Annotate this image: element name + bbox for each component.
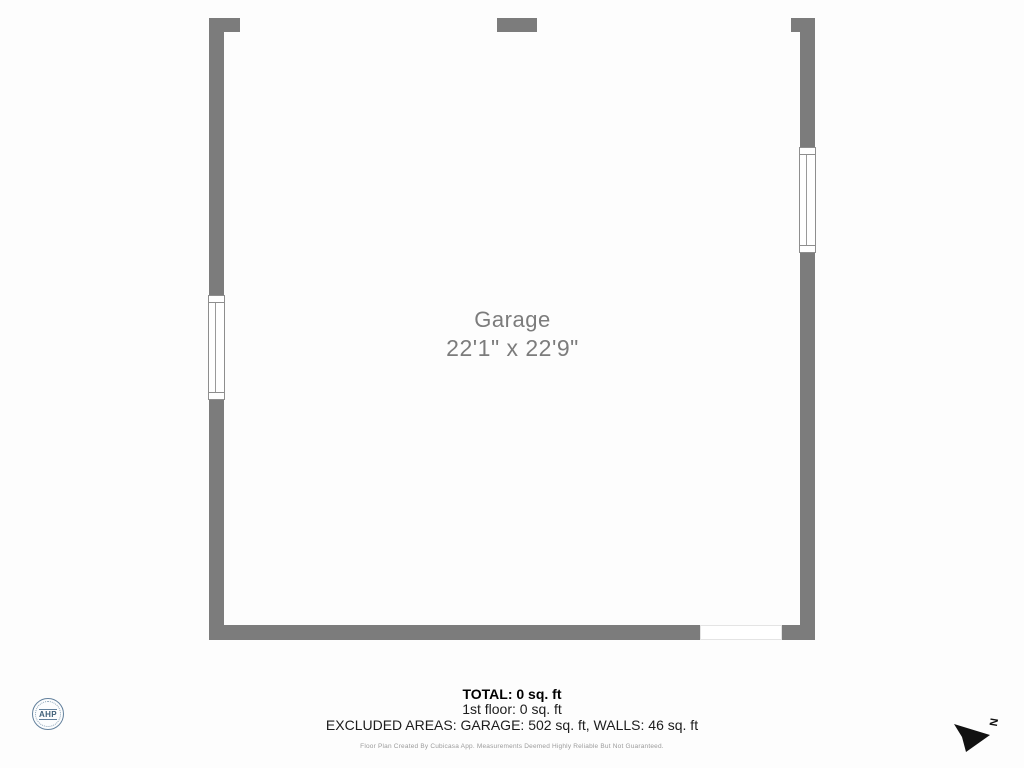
area-summary: TOTAL: 0 sq. ft 1st floor: 0 sq. ft EXCL… bbox=[0, 687, 1024, 756]
window-frame-line bbox=[800, 154, 815, 155]
wall-right-upper bbox=[800, 18, 815, 147]
wall-left-upper bbox=[209, 18, 224, 295]
north-arrow-icon bbox=[952, 722, 992, 756]
window-right bbox=[799, 147, 816, 253]
window-frame-line bbox=[209, 302, 224, 303]
room-dimensions: 22'1" x 22'9" bbox=[224, 334, 801, 362]
wall-bottom-right bbox=[782, 625, 815, 640]
excluded-areas-text: EXCLUDED AREAS: GARAGE: 502 sq. ft, WALL… bbox=[0, 718, 1024, 733]
wall-bottom-left bbox=[209, 625, 700, 640]
compass: N bbox=[952, 718, 1008, 760]
disclaimer-text: Floor Plan Created By Cubicasa App. Meas… bbox=[0, 743, 1024, 750]
logo-text: AHP bbox=[39, 709, 57, 720]
wall-top-middle-pier bbox=[497, 18, 537, 32]
door-opening-bottom bbox=[700, 625, 782, 640]
wall-right-lower bbox=[800, 252, 815, 640]
room-label: Garage 22'1" x 22'9" bbox=[224, 306, 801, 362]
total-area-text: TOTAL: 0 sq. ft bbox=[0, 687, 1024, 702]
window-pane-line bbox=[806, 155, 807, 245]
window-pane-line bbox=[215, 303, 216, 392]
room-name: Garage bbox=[224, 306, 801, 334]
window-frame-line bbox=[800, 245, 815, 246]
garage-door-opening-left bbox=[240, 18, 497, 32]
logo-ring: AHP bbox=[35, 701, 61, 727]
first-floor-text: 1st floor: 0 sq. ft bbox=[0, 702, 1024, 717]
ahp-logo: AHP bbox=[32, 698, 64, 730]
garage-door-opening-right bbox=[537, 18, 791, 32]
wall-left-lower bbox=[209, 399, 224, 640]
window-frame-line bbox=[209, 392, 224, 393]
window-left bbox=[208, 295, 225, 400]
floor-plan: Garage 22'1" x 22'9" bbox=[0, 0, 1024, 768]
